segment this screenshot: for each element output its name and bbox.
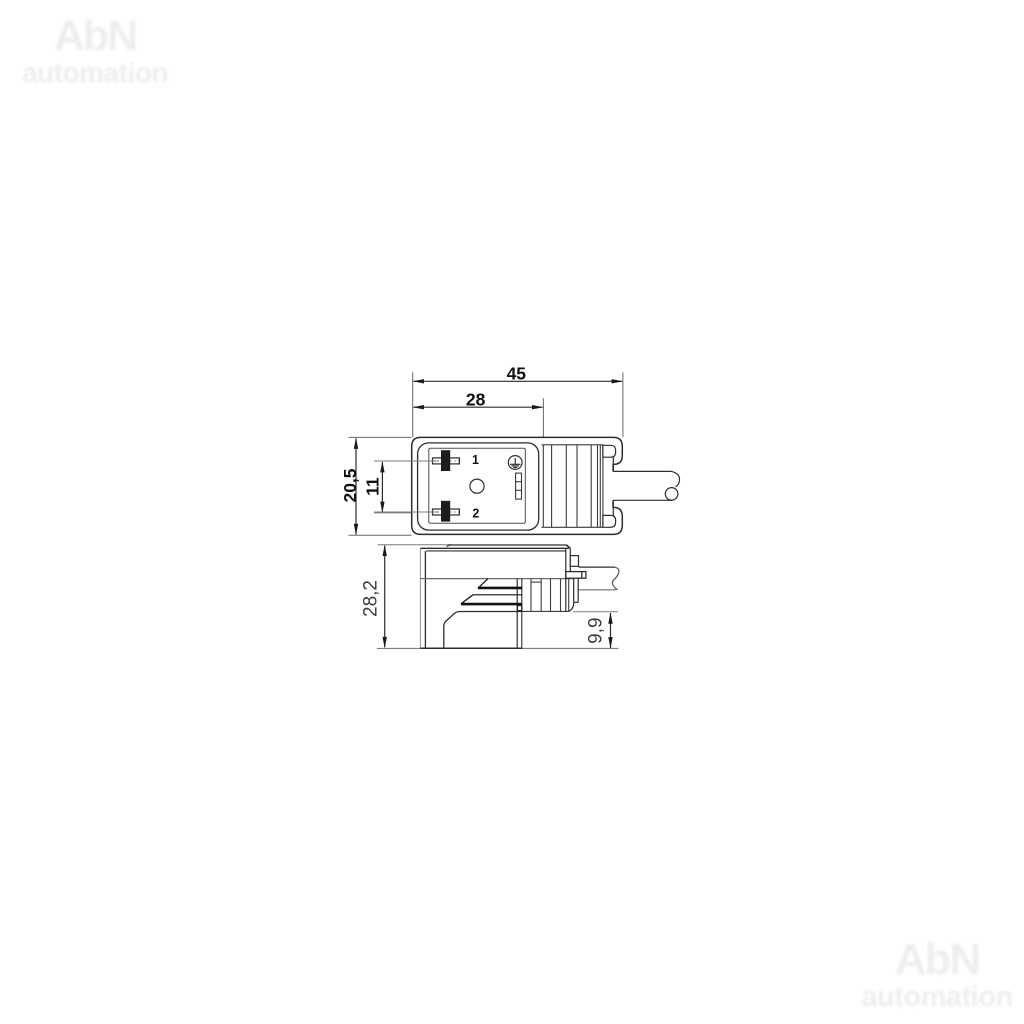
svg-text:28: 28 <box>466 390 486 410</box>
svg-text:9,9: 9,9 <box>585 617 606 643</box>
svg-text:1: 1 <box>472 453 479 467</box>
svg-text:45: 45 <box>507 364 527 384</box>
svg-text:20,5: 20,5 <box>340 468 360 502</box>
svg-text:11: 11 <box>362 477 382 496</box>
svg-text:2: 2 <box>472 507 479 521</box>
svg-text:28,2: 28,2 <box>361 580 382 617</box>
